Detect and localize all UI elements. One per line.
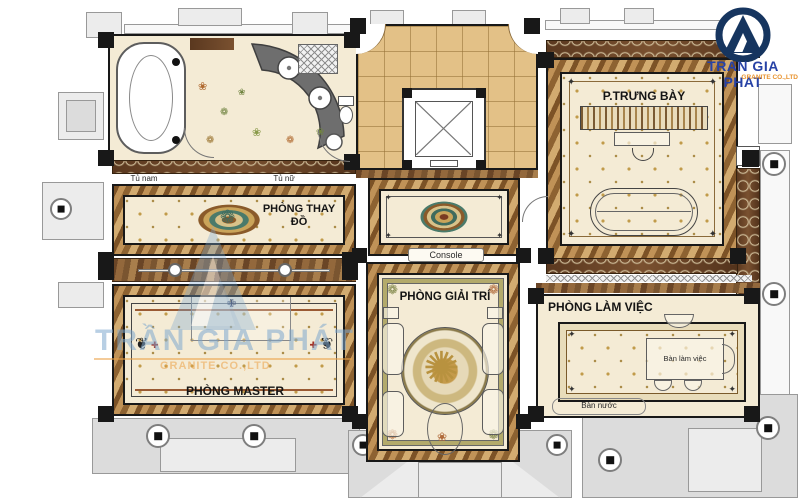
wall-column: [524, 18, 540, 34]
entertainment-floor: ❁ ❁ ❁ ❁ ❀ PHÒNG GIẢI TRÍ ✺: [377, 273, 509, 451]
sofa-right: [482, 389, 504, 435]
room-label-entertainment: PHÒNG GIẢI TRÍ: [385, 291, 505, 304]
right-wall-ledge: [760, 150, 790, 400]
top-pilaster: [624, 8, 654, 24]
wall-column: [98, 252, 114, 280]
room-label-office: PHÒNG LÀM VIỆC: [548, 301, 708, 315]
right-wall-ledge: [758, 84, 792, 144]
office-top-band: [536, 283, 760, 293]
corner-ornament: ✦: [496, 194, 503, 202]
corner-ornament: ✦: [567, 230, 575, 240]
corner-ornament: ✦: [709, 230, 717, 240]
terrace-center-step: [418, 462, 502, 498]
console-hall: ✦ ✦ ✦ ✦: [368, 178, 520, 256]
door-swing: [184, 128, 214, 158]
logo-mountain-icon: [688, 6, 798, 62]
console-medallion: [415, 198, 473, 236]
flower-motif: ❀: [252, 128, 261, 139]
logo-tagline: GRANITE CO.,LTD: [722, 74, 798, 81]
corner-ornament: ✦: [568, 385, 576, 394]
display-table-oval: [590, 188, 698, 236]
shaft-column: [402, 88, 412, 98]
column: [598, 448, 622, 472]
room-label-dressing: PHÒNG THAY ĐỒ: [255, 203, 343, 228]
wood-shelf: [190, 38, 234, 50]
elevator-hall: [356, 24, 538, 170]
top-pilaster: [178, 8, 242, 26]
wall-column: [744, 288, 760, 304]
wall-column: [98, 32, 114, 48]
rail-end: [278, 263, 292, 277]
toilet: [338, 96, 354, 106]
display-floor: ✦ ✦ ✦ ✦ P.TRƯNG BÀY: [560, 72, 724, 246]
bed-outline: [191, 297, 291, 341]
sofa-right: [482, 323, 504, 375]
wall-column: [350, 18, 366, 34]
wall-column: [98, 406, 114, 422]
curtain-rail: [138, 269, 330, 272]
flower-motif: ❀: [238, 88, 246, 97]
medallion-ornament: ❁: [220, 208, 235, 226]
rail-end: [168, 263, 182, 277]
corner-ornament: ✦: [728, 385, 736, 394]
elevator-door: [430, 160, 458, 167]
corner-ornament: ✦: [567, 78, 575, 88]
room-label-display: P.TRƯNG BÀY: [574, 90, 714, 104]
wall-column: [352, 414, 367, 429]
floor-plan-canvas: ❀ ❁ ❀ ❁ ❀ ❁ ❀ ✦: [0, 0, 800, 500]
corridor-band: [112, 258, 356, 282]
wall-column: [538, 52, 554, 68]
toilet-bowl: [339, 106, 353, 124]
corner-ornament: ✦: [385, 232, 392, 240]
wardrobe-label-women: Tủ nữ: [258, 174, 310, 183]
column: [242, 424, 266, 448]
wall-column: [528, 288, 544, 304]
wall-column: [528, 406, 544, 422]
frame-flower: ✚: [151, 341, 159, 350]
display-cabinet: [580, 106, 708, 130]
wall-column: [516, 248, 531, 263]
flower-motif: ❁: [286, 136, 294, 146]
desk: Bàn làm việc: [646, 338, 724, 380]
bathtub-basin: [129, 55, 173, 141]
room-label-master: PHÒNG MASTER: [135, 385, 335, 399]
corner-ornament: ✦: [496, 232, 503, 240]
terrace-right-block: [688, 428, 762, 492]
side-table: [383, 307, 399, 319]
column: [546, 434, 568, 456]
console-label: Console: [409, 250, 483, 260]
terrace-left-bay: [160, 438, 296, 472]
shaft-column: [476, 160, 486, 170]
elevator-shaft: [402, 88, 486, 170]
shower-floor: [298, 44, 338, 74]
flower-motif: ❁: [220, 108, 228, 118]
column: [146, 424, 170, 448]
wardrobe-label-men: Tủ nam: [118, 174, 170, 183]
wardrobe-strip-dressing: [112, 160, 356, 174]
desk-label: Bàn làm việc: [649, 354, 721, 363]
wall-column: [344, 32, 360, 48]
sunburst-glyph: ✺: [423, 347, 460, 391]
bathtub-drain: [172, 136, 180, 144]
room-master: ❦ ❦ ✚ ✚ ✙ PHÒNG MASTER: [112, 284, 356, 416]
door-swing: [522, 196, 548, 222]
wall-column: [98, 150, 114, 166]
oval-table: [427, 403, 463, 455]
wall-column: [744, 406, 760, 422]
top-pilaster: [560, 8, 590, 24]
wall-column: [352, 248, 367, 263]
elevator-x-mark: [416, 102, 471, 155]
left-pilaster: [58, 282, 104, 308]
wall-column: [538, 248, 554, 264]
hall-threshold: [356, 170, 538, 178]
company-logo: TRAN GIA PHAT GRANITE CO.,LTD: [688, 6, 798, 82]
office-carpet: ✦ ✦ ✦ ✦ Bàn làm việc: [558, 322, 746, 402]
bathtub-faucet: [172, 58, 180, 66]
wall-column: [742, 150, 759, 167]
frame-swirl: ❦: [135, 337, 148, 353]
tea-table-outline: Bàn nước: [552, 398, 646, 415]
corner-ornament: ✦: [568, 330, 576, 339]
wall-hatch-band: [546, 275, 752, 282]
office-chair: [664, 314, 694, 328]
display-table-divider: [597, 211, 691, 212]
console-floor: ✦ ✦ ✦ ✦: [379, 189, 509, 245]
column: [50, 198, 72, 220]
room-entertainment: ❁ ❁ ❁ ❁ ❀ PHÒNG GIẢI TRÍ ✺: [366, 262, 520, 462]
corner-ornament: ✦: [385, 194, 392, 202]
side-table: [487, 307, 503, 319]
elevator-cab: [415, 101, 473, 157]
left-bay-window-inner: [66, 100, 96, 132]
tea-table-label: Bàn nước: [553, 401, 645, 410]
sofa-left: [382, 323, 404, 375]
frame-swirl: ❦: [320, 337, 333, 353]
bathtub: [116, 42, 186, 154]
room-dressing: ❁ PHÒNG THAY ĐỒ: [112, 184, 356, 256]
corner-ornament: ✦: [728, 330, 736, 339]
column: [762, 282, 786, 306]
master-floor: ❦ ❦ ✚ ✚ ✙ PHÒNG MASTER: [123, 295, 345, 405]
wall-column: [730, 248, 746, 264]
shaft-column: [476, 88, 486, 98]
sofa-left: [382, 391, 404, 437]
frame-finial: ✙: [227, 299, 236, 310]
flower-motif: ❀: [198, 82, 207, 93]
console-table-tab: Console: [408, 248, 484, 262]
frame-flower: ✚: [309, 341, 317, 350]
room-office: PHÒNG LÀM VIỆC ✦ ✦ ✦ ✦ Bàn làm việc Bàn …: [536, 294, 760, 418]
wardrobe-strip-mid-right: [546, 258, 738, 274]
column: [762, 152, 786, 176]
display-pedestal: [614, 132, 670, 146]
dressing-floor: ❁ PHÒNG THAY ĐỒ: [123, 195, 345, 245]
shaft-column: [402, 160, 412, 170]
display-table-inner: [595, 193, 693, 231]
